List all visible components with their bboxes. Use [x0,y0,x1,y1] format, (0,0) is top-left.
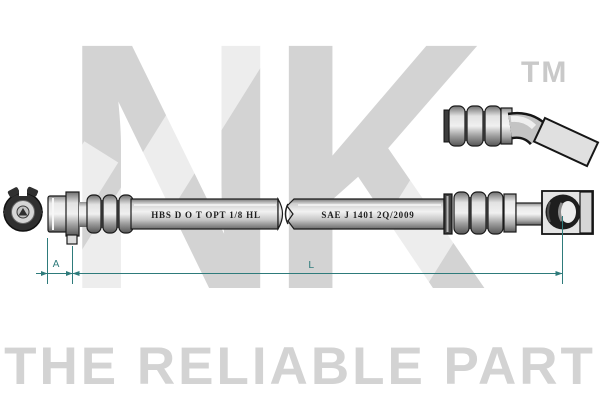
hose-marking-left: HBS D O T OPT 1/8 HL [151,210,261,220]
brake-hose-illustration: HBS D O T OPT 1/8 HL SAE J 1401 2Q/2009 [0,0,600,400]
right-fitting [444,192,543,234]
left-mount-bracket [3,186,43,231]
hose-segment-left: HBS D O T OPT 1/8 HL [131,199,283,229]
product-image-brake-hose: NK TM THE RELIABLE PART [0,0,600,400]
banjo-fitting [542,191,593,234]
left-fitting [48,192,133,244]
hose-segment-right: SAE J 1401 2Q/2009 [287,199,444,229]
dimension-l-label: L [308,260,314,271]
dimension-a-label: A [53,259,60,270]
hose-marking-right: SAE J 1401 2Q/2009 [321,210,414,220]
angled-end-fitting-detail [444,106,598,166]
